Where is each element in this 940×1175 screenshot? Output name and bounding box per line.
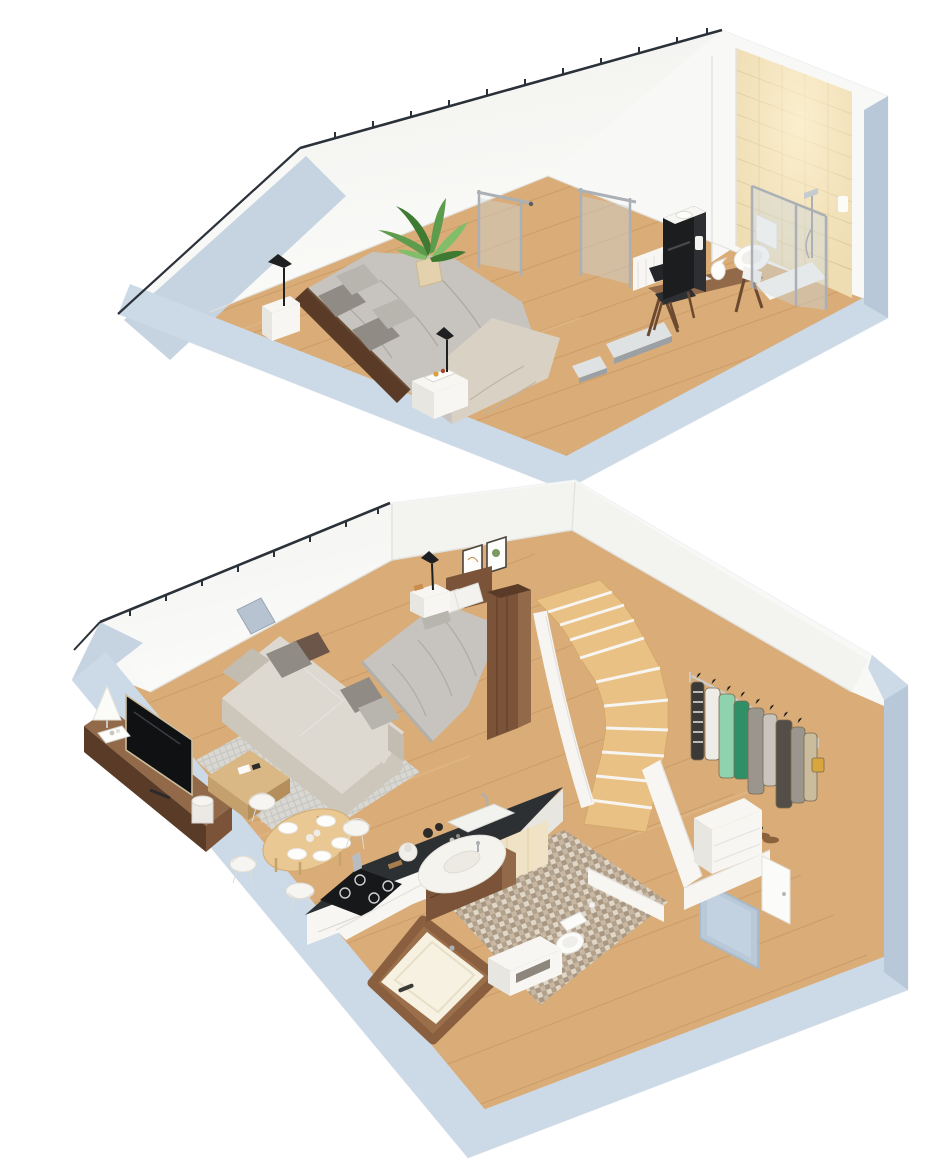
upper-right-wall — [864, 96, 888, 318]
floor-vase — [192, 796, 213, 823]
walnut-wardrobe — [487, 584, 531, 740]
isometric-scene — [0, 0, 940, 1175]
vanity-cabinet — [663, 206, 706, 300]
lower-floor — [72, 480, 908, 1158]
toilet-paper — [589, 902, 595, 908]
upper-bathroom-partition — [712, 48, 736, 262]
lower-right-wall — [884, 685, 908, 990]
upper-floor — [118, 28, 940, 490]
tub-faucet — [449, 945, 454, 950]
floor-plan-rendering — [0, 0, 940, 1175]
towel — [838, 196, 848, 212]
bag — [812, 758, 824, 772]
